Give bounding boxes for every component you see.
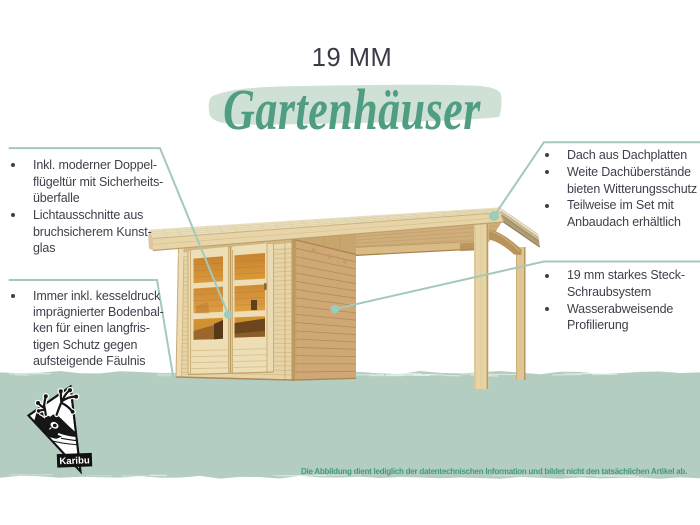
svg-text:Karibu: Karibu xyxy=(59,455,90,467)
